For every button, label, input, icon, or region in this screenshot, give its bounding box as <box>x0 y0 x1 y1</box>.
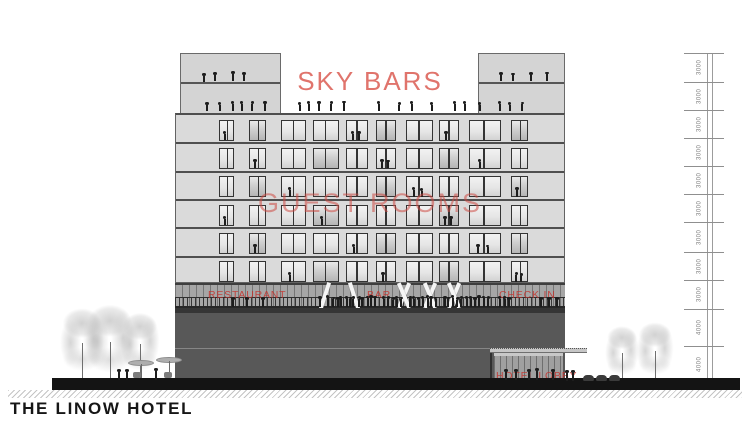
window-mullion <box>258 149 259 168</box>
terrace-chair <box>133 372 141 378</box>
person-silhouette <box>374 298 376 307</box>
person-silhouette <box>528 372 530 381</box>
person-silhouette <box>340 298 342 307</box>
dimension-value: 3000 <box>694 252 705 280</box>
person-silhouette <box>382 275 384 282</box>
person-silhouette <box>383 299 385 307</box>
window-mullion <box>227 121 228 140</box>
person-silhouette <box>540 300 542 308</box>
person-silhouette <box>321 219 323 226</box>
window-mullion <box>356 262 357 281</box>
window-mullion <box>385 121 386 140</box>
guest-room-window <box>281 233 306 254</box>
person-silhouette <box>566 373 568 382</box>
guest-room-window <box>469 261 501 282</box>
person-silhouette <box>361 300 363 307</box>
person-silhouette <box>499 299 501 307</box>
person-silhouette <box>487 247 489 253</box>
window-mullion <box>385 262 386 281</box>
person-silhouette <box>358 299 360 307</box>
guest-room-window <box>346 120 368 141</box>
window-mullion <box>418 149 419 168</box>
window-mullion <box>325 149 326 168</box>
dimension-value: 4000 <box>694 309 705 346</box>
window-mullion <box>325 121 326 140</box>
guest-rooms-label: GUEST ROOMS <box>175 188 565 219</box>
person-silhouette <box>352 299 354 307</box>
guest-room-window <box>406 233 433 254</box>
window-mullion <box>293 121 294 140</box>
window-mullion <box>258 121 259 140</box>
guest-room-window <box>511 120 528 141</box>
person-silhouette <box>483 298 485 307</box>
guest-room-window <box>313 148 339 169</box>
person-silhouette <box>246 300 248 308</box>
guest-room-window <box>439 148 459 169</box>
person-silhouette <box>318 104 320 112</box>
window-mullion <box>418 234 419 253</box>
guest-room-window <box>313 261 339 282</box>
person-silhouette <box>478 298 480 307</box>
person-silhouette <box>262 300 264 308</box>
person-silhouette <box>343 103 345 111</box>
person-silhouette <box>398 105 400 112</box>
window-mullion <box>520 121 521 140</box>
person-silhouette <box>241 104 243 111</box>
guest-room-window <box>219 148 234 169</box>
person-silhouette <box>479 105 481 112</box>
guest-room-window <box>439 261 459 282</box>
person-silhouette <box>548 300 550 308</box>
person-silhouette <box>444 219 446 226</box>
dimension-value: 3000 <box>694 53 705 82</box>
elevation-drawing: 3000300030003000300030003000300030004000… <box>0 0 750 426</box>
floor-slab-line <box>176 142 564 144</box>
window-mullion <box>483 262 484 281</box>
tree-trunk <box>655 351 656 380</box>
person-silhouette <box>378 104 380 112</box>
person-silhouette <box>504 299 506 307</box>
person-silhouette <box>232 300 234 308</box>
person-silhouette <box>224 134 226 141</box>
person-silhouette <box>411 104 413 112</box>
person-silhouette <box>427 298 429 307</box>
person-silhouette <box>327 298 329 307</box>
person-silhouette <box>505 372 507 381</box>
tree-trunk <box>622 353 623 380</box>
person-silhouette <box>387 162 389 168</box>
window-mullion <box>448 149 449 168</box>
person-silhouette <box>396 299 398 307</box>
person-silhouette <box>232 104 234 111</box>
person-silhouette <box>435 299 437 307</box>
guest-room-window <box>249 261 266 282</box>
person-silhouette <box>431 105 433 112</box>
guest-room-window <box>376 120 396 141</box>
guest-room-window <box>376 261 396 282</box>
guest-room-window <box>469 148 501 169</box>
parked-car <box>609 375 620 381</box>
window-mullion <box>483 121 484 140</box>
window-mullion <box>227 234 228 253</box>
guest-room-window <box>511 233 528 254</box>
person-silhouette <box>422 299 424 307</box>
window-mullion <box>227 262 228 281</box>
person-silhouette <box>552 372 554 380</box>
person-silhouette <box>572 373 574 381</box>
entrance-canopy <box>490 348 587 353</box>
window-mullion <box>258 234 259 253</box>
window-mullion <box>418 262 419 281</box>
person-silhouette <box>430 299 432 307</box>
window-mullion <box>325 262 326 281</box>
dimension-value: 3000 <box>694 222 705 252</box>
person-silhouette <box>474 300 476 307</box>
person-silhouette <box>319 299 321 307</box>
guest-room-window <box>376 233 396 254</box>
person-silhouette <box>454 104 456 112</box>
person-silhouette <box>155 371 157 380</box>
guest-room-window <box>469 120 501 141</box>
person-silhouette <box>349 299 351 307</box>
guest-room-window <box>406 120 433 141</box>
person-silhouette <box>367 298 369 307</box>
person-silhouette <box>392 300 394 307</box>
person-silhouette <box>452 298 454 307</box>
floor-slab-line <box>176 227 564 229</box>
window-mullion <box>258 262 259 281</box>
window-mullion <box>227 149 228 168</box>
guest-room-window <box>249 120 266 141</box>
guest-room-window <box>346 233 368 254</box>
terrace-chair <box>164 372 172 378</box>
person-silhouette <box>530 75 532 81</box>
person-silhouette <box>243 75 245 81</box>
guest-room-window <box>219 233 234 254</box>
dimension-value: 3000 <box>694 194 705 222</box>
person-silhouette <box>352 134 354 141</box>
dimension-value: 3000 <box>694 166 705 194</box>
dimension-line <box>707 53 708 383</box>
person-silhouette <box>289 275 291 282</box>
dimension-value: 3000 <box>694 138 705 166</box>
floor-slab-line <box>176 256 564 258</box>
window-mullion <box>448 262 449 281</box>
dimension-value: 3000 <box>694 82 705 110</box>
window-mullion <box>448 234 449 253</box>
window-mullion <box>293 149 294 168</box>
person-silhouette <box>400 299 402 307</box>
window-mullion <box>293 262 294 281</box>
person-silhouette <box>232 74 234 81</box>
window-mullion <box>293 234 294 253</box>
person-silhouette <box>515 372 517 380</box>
person-silhouette <box>546 74 548 81</box>
window-mullion <box>483 149 484 168</box>
floor-slab-line <box>176 171 564 173</box>
person-silhouette <box>445 134 447 141</box>
window-mullion <box>520 149 521 168</box>
drawing-title: THE LINOW HOTEL <box>10 399 193 419</box>
guest-room-window <box>249 233 266 254</box>
person-silhouette <box>332 299 334 307</box>
guest-room-window <box>249 148 266 169</box>
person-silhouette <box>464 104 466 111</box>
guest-room-window <box>439 120 459 141</box>
person-silhouette <box>520 276 522 282</box>
person-silhouette <box>512 75 514 81</box>
person-silhouette <box>450 219 452 225</box>
person-silhouette <box>206 105 208 112</box>
person-silhouette <box>536 371 538 380</box>
window-mullion <box>356 234 357 253</box>
guest-room-window <box>346 261 368 282</box>
person-silhouette <box>499 104 501 111</box>
dimension-value: 3000 <box>694 110 705 138</box>
person-silhouette <box>251 104 253 112</box>
person-silhouette <box>308 104 310 112</box>
person-silhouette <box>254 247 256 254</box>
person-silhouette <box>479 162 481 169</box>
person-silhouette <box>521 104 523 111</box>
guest-room-window <box>281 120 306 141</box>
guest-room-window <box>346 148 368 169</box>
window-mullion <box>483 234 484 253</box>
person-silhouette <box>508 300 510 307</box>
person-silhouette <box>447 299 449 307</box>
dimension-line <box>712 53 713 383</box>
window-mullion <box>520 234 521 253</box>
person-silhouette <box>460 299 462 307</box>
guest-room-window <box>469 233 501 254</box>
guest-room-window <box>313 120 339 141</box>
guest-room-window <box>219 261 234 282</box>
person-silhouette <box>381 162 383 169</box>
person-silhouette <box>346 299 348 307</box>
person-silhouette <box>370 298 372 307</box>
person-silhouette <box>515 275 517 282</box>
person-silhouette <box>500 75 502 81</box>
person-silhouette <box>353 247 355 254</box>
tree-trunk <box>110 342 111 380</box>
person-silhouette <box>509 105 511 112</box>
person-silhouette <box>203 76 205 82</box>
parked-car <box>596 375 607 381</box>
person-silhouette <box>358 134 360 140</box>
guest-room-window <box>406 148 433 169</box>
guest-room-window <box>281 148 306 169</box>
guest-room-window <box>439 233 459 254</box>
person-silhouette <box>330 104 332 112</box>
person-silhouette <box>413 299 415 307</box>
person-silhouette <box>456 300 458 307</box>
guest-room-window <box>511 148 528 169</box>
person-silhouette <box>224 219 226 226</box>
person-silhouette <box>556 300 558 308</box>
window-mullion <box>385 234 386 253</box>
window-mullion <box>418 121 419 140</box>
person-silhouette <box>477 247 479 254</box>
guest-room-window <box>219 120 234 141</box>
dimension-value: 3000 <box>694 280 705 309</box>
person-silhouette <box>470 299 472 307</box>
person-silhouette <box>214 75 216 82</box>
person-silhouette <box>219 105 221 112</box>
guest-room-window <box>313 233 339 254</box>
person-silhouette <box>387 299 389 307</box>
guest-room-window <box>281 261 306 282</box>
guest-room-window <box>406 261 433 282</box>
person-silhouette <box>264 104 266 112</box>
parked-car <box>583 375 594 381</box>
window-mullion <box>448 121 449 140</box>
window-mullion <box>325 234 326 253</box>
window-mullion <box>356 149 357 168</box>
person-silhouette <box>466 299 468 307</box>
ground-hatch <box>8 390 742 398</box>
person-silhouette <box>487 299 489 307</box>
guest-room-window <box>376 148 396 169</box>
person-silhouette <box>118 372 120 381</box>
person-silhouette <box>299 105 301 112</box>
person-silhouette <box>444 299 446 307</box>
person-silhouette <box>409 298 411 307</box>
person-silhouette <box>418 300 420 307</box>
person-silhouette <box>254 162 256 169</box>
person-silhouette <box>126 372 128 380</box>
